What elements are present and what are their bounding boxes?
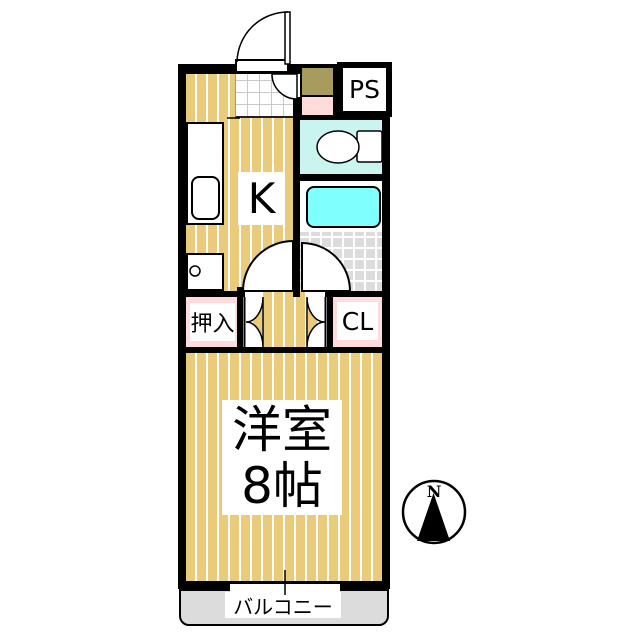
western-room-label-box: 洋室 8帖: [222, 400, 342, 515]
pipe-space: PS: [343, 68, 386, 111]
wall-oshiire-right: [237, 297, 243, 347]
wall-bath-top: [293, 174, 390, 181]
doorway-floor-strip: [263, 291, 307, 353]
compass-circle-icon: [403, 481, 465, 543]
kitchen-sink: [191, 176, 220, 220]
shoe-cabinet: [302, 68, 333, 95]
wall-right: [382, 62, 390, 589]
western-room-name: 洋室: [232, 402, 332, 458]
bathroom-tile-floor: [300, 232, 382, 291]
wall-mid-vertical: [293, 97, 300, 297]
pipe-space-label: PS: [349, 75, 380, 104]
kitchen-label: K: [248, 174, 276, 223]
cl-label: CL: [342, 307, 373, 336]
entrance-door-open-leaf: [285, 12, 290, 64]
wall-left: [178, 64, 186, 589]
compass-north-arrow-icon: [417, 493, 450, 541]
balcony-label: バルコニー: [233, 591, 333, 620]
kitchen-counter: [186, 122, 224, 225]
bathtub: [306, 186, 381, 228]
oshiire-label-box: 押入: [190, 303, 235, 341]
cl-label-box: CL: [337, 302, 378, 340]
hall-pink-area: [302, 97, 333, 115]
oshiire-label: 押入: [190, 306, 234, 338]
floor-plan: PS 押入 CL K バルコニー 洋室 8帖: [0, 0, 640, 640]
wall-closet-bottom: [178, 347, 390, 353]
entrance-genkan-tiles: [235, 74, 293, 118]
kitchen-label-box: K: [238, 172, 285, 225]
compass-north-label: N: [427, 482, 442, 501]
entrance-door-arc: [237, 12, 288, 62]
toilet-room: [300, 120, 382, 174]
hall-passage-gap: [293, 74, 300, 95]
balcony-label-box: バルコニー: [225, 592, 341, 618]
western-room-size: 8帖: [241, 458, 323, 514]
kitchen-stove-box: [186, 253, 224, 291]
